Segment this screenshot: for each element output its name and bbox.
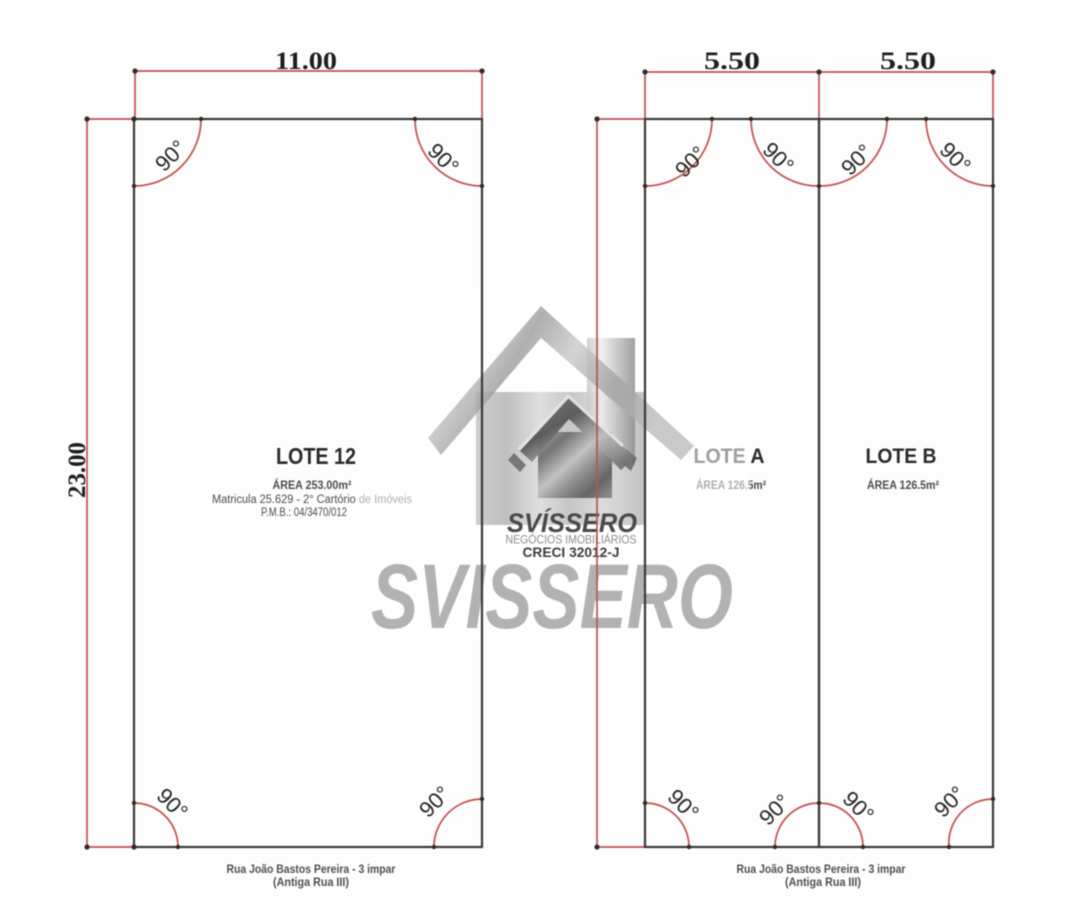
svg-text:Rua João Bastos Pereira - 3 im: Rua João Bastos Pereira - 3 impar [227,864,396,876]
svg-text:LOTE 12: LOTE 12 [276,443,356,469]
svg-text:ÁREA 126.5m²: ÁREA 126.5m² [867,477,939,492]
svg-text:Rua João Bastos Pereira - 3 im: Rua João Bastos Pereira - 3 impar [737,864,906,876]
svg-text:5.50: 5.50 [880,48,936,75]
svg-text:P.M.B.: 04/3470/012: P.M.B.: 04/3470/012 [261,507,347,519]
svg-text:(Antiga Rua III): (Antiga Rua III) [785,877,861,889]
svg-text:5.50: 5.50 [704,48,760,75]
svg-text:23.00: 23.00 [64,442,91,498]
svg-text:(Antiga Rua III): (Antiga Rua III) [273,877,349,889]
svg-text:SVISSERO: SVISSERO [371,546,733,648]
svg-text:ÁREA 253.00m²: ÁREA 253.00m² [273,477,352,492]
svg-text:11.00: 11.00 [275,48,337,75]
svg-text:LOTE B: LOTE B [866,445,937,468]
svg-text:SVÍSSERO: SVÍSSERO [507,507,637,538]
